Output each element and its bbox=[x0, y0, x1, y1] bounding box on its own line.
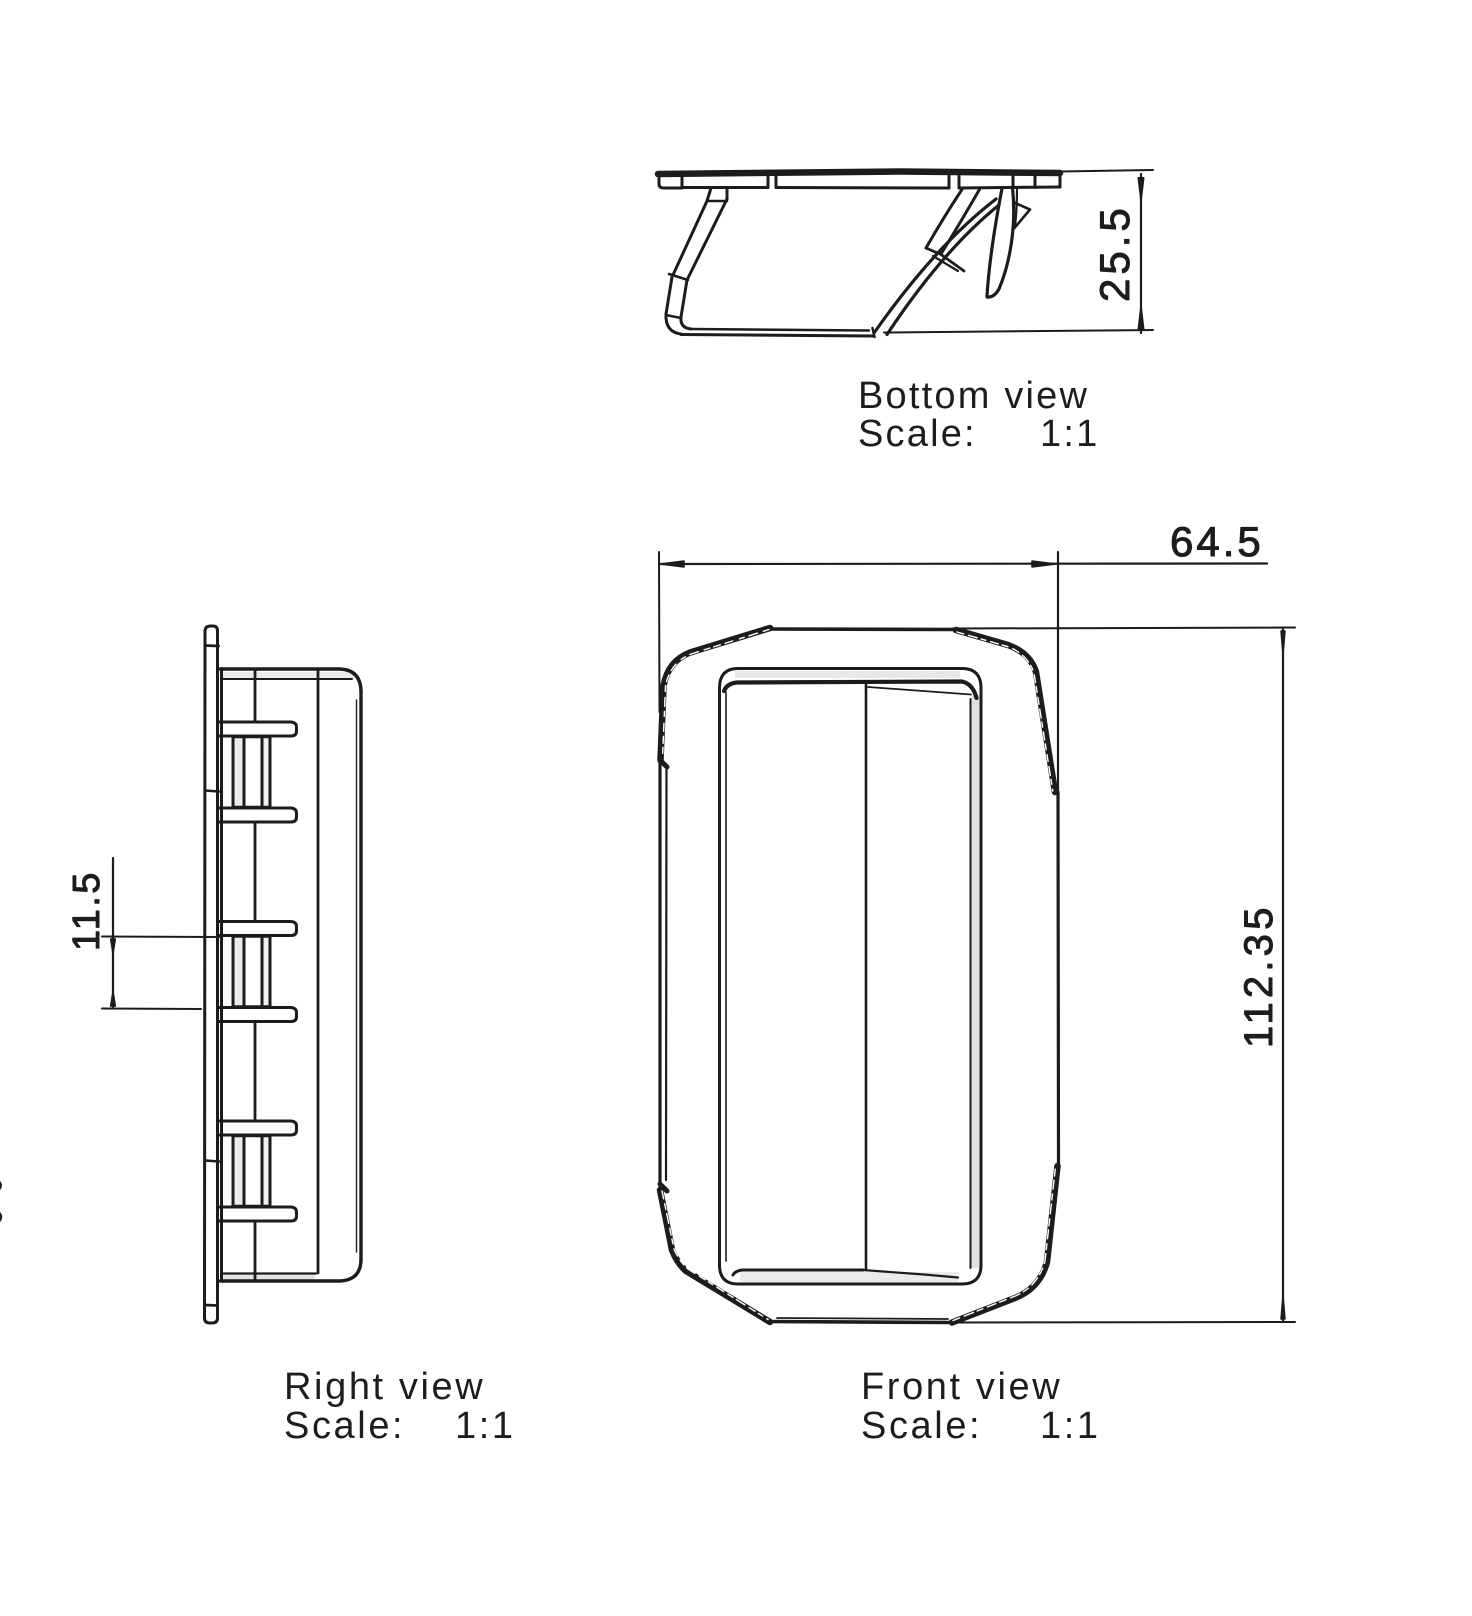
svg-text:Scale:: Scale: bbox=[284, 1405, 405, 1447]
svg-text:11.5: 11.5 bbox=[66, 870, 108, 951]
svg-text:1:1: 1:1 bbox=[455, 1405, 516, 1447]
svg-text:25.5: 25.5 bbox=[1091, 204, 1138, 302]
svg-text:Bottom view: Bottom view bbox=[858, 375, 1089, 417]
svg-text:Scale:: Scale: bbox=[861, 1405, 982, 1447]
svg-text:1:1: 1:1 bbox=[1040, 413, 1099, 455]
svg-text:Scale:: Scale: bbox=[858, 413, 977, 455]
svg-text:1:1: 1:1 bbox=[1040, 1405, 1101, 1447]
svg-text:112.35: 112.35 bbox=[1237, 903, 1281, 1048]
svg-text:Front view: Front view bbox=[861, 1366, 1062, 1408]
svg-text:Right view: Right view bbox=[284, 1366, 485, 1408]
svg-text:64.5: 64.5 bbox=[1170, 518, 1264, 565]
